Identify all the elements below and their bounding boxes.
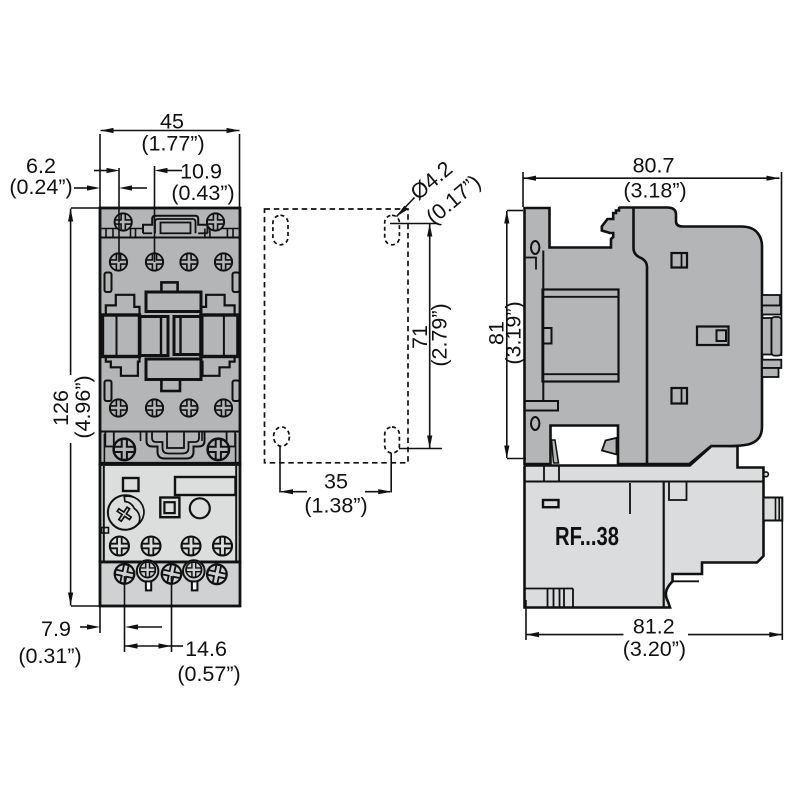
svg-text:81.2: 81.2: [633, 615, 675, 639]
svg-text:10.9: 10.9: [180, 160, 222, 184]
svg-text:(0.43”): (0.43”): [171, 181, 234, 205]
svg-text:45: 45: [160, 110, 184, 134]
svg-text:126: 126: [49, 390, 73, 426]
svg-text:(0.24”): (0.24”): [9, 175, 72, 199]
svg-text:RF...38: RF...38: [555, 521, 619, 551]
svg-text:(4.96”): (4.96”): [71, 375, 95, 438]
svg-text:7.9: 7.9: [41, 617, 71, 641]
svg-text:(3.19”): (3.19”): [502, 301, 526, 364]
svg-text:14.6: 14.6: [185, 637, 227, 661]
svg-text:80.7: 80.7: [633, 154, 675, 178]
svg-text:(3.20”): (3.20”): [623, 637, 686, 661]
svg-text:(0.31”): (0.31”): [18, 644, 81, 668]
svg-text:(3.18”): (3.18”): [623, 179, 686, 203]
svg-text:(0.57”): (0.57”): [177, 662, 240, 686]
svg-text:(1.38”): (1.38”): [304, 494, 367, 518]
svg-text:35: 35: [324, 470, 348, 494]
svg-text:(2.79”): (2.79”): [428, 303, 452, 366]
svg-text:(1.77”): (1.77”): [141, 132, 204, 156]
